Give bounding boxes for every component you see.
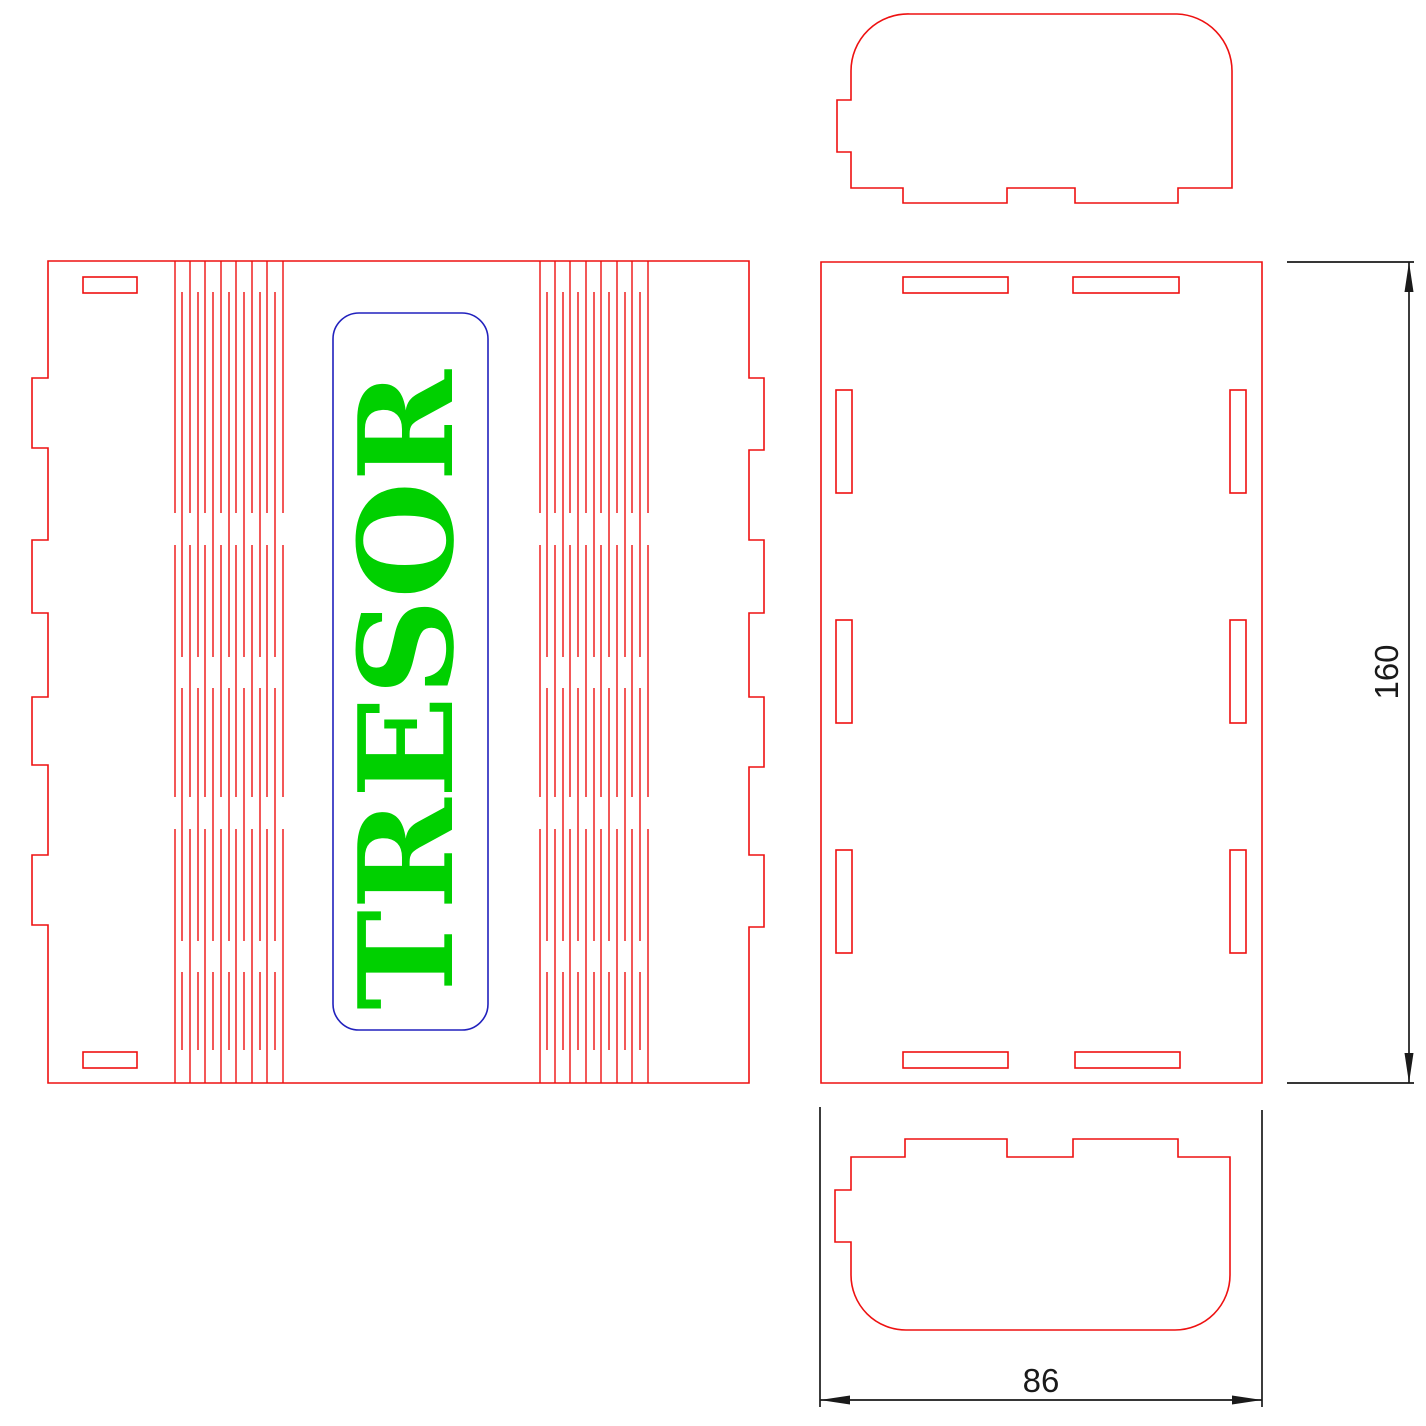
engrave-text-layer: TRESOR bbox=[330, 369, 483, 1010]
height-dim-text: 160 bbox=[1368, 644, 1405, 699]
cad-canvas: TRESOR 160 86 bbox=[0, 0, 1426, 1426]
brand-text: TRESOR bbox=[330, 369, 483, 1010]
canvas-background bbox=[0, 0, 1426, 1426]
width-dim-text: 86 bbox=[1023, 1362, 1060, 1399]
cad-drawing-page: TRESOR 160 86 bbox=[0, 0, 1426, 1426]
